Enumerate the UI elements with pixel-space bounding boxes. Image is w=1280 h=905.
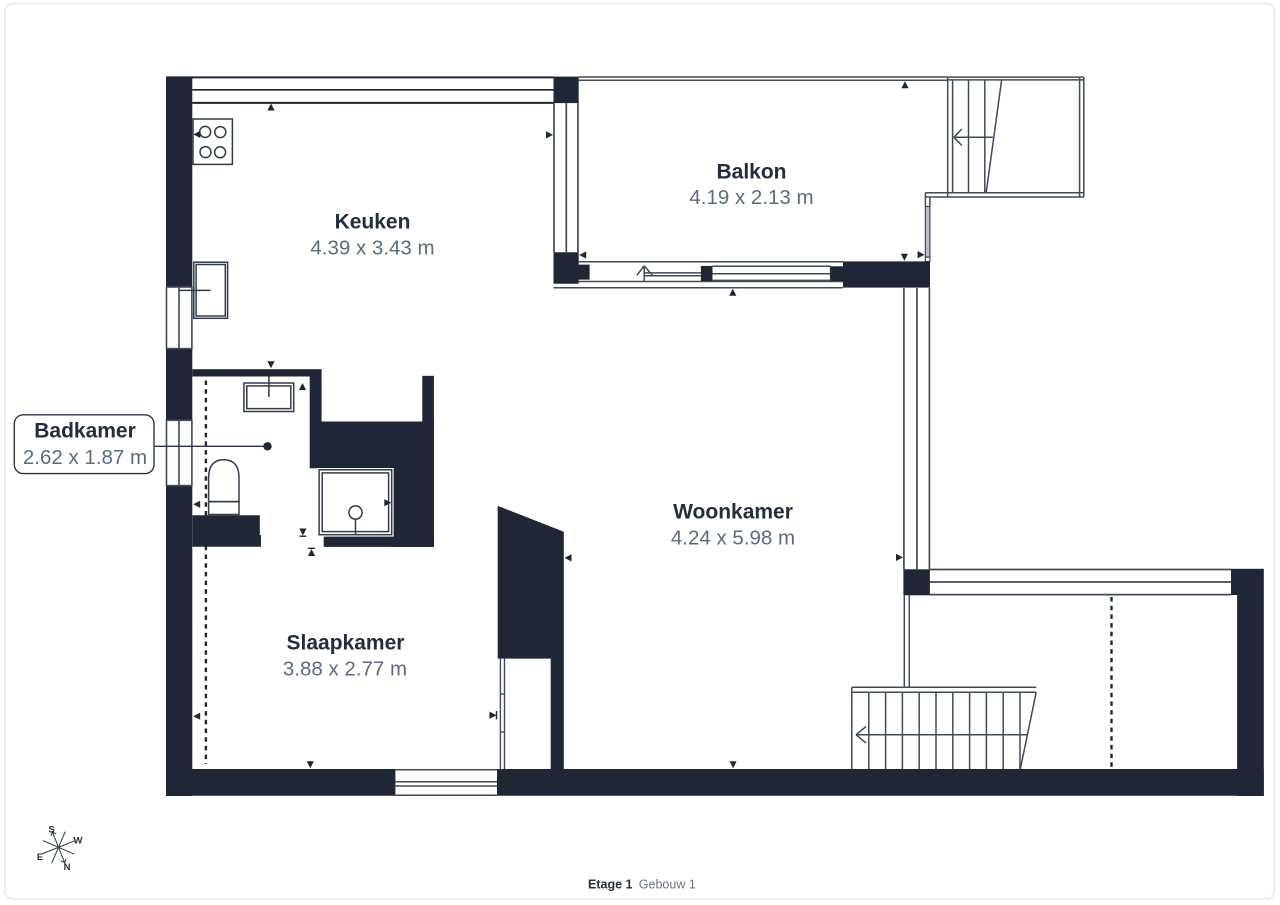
svg-text:Woonkamer: Woonkamer	[673, 501, 793, 524]
svg-text:E: E	[37, 852, 43, 863]
svg-text:Keuken: Keuken	[335, 210, 411, 233]
svg-text:4.39 x 3.43 m: 4.39 x 3.43 m	[310, 237, 434, 260]
svg-text:N: N	[64, 862, 71, 873]
svg-text:4.24 x 5.98 m: 4.24 x 5.98 m	[671, 527, 795, 550]
svg-text:Slaapkamer: Slaapkamer	[287, 631, 405, 654]
svg-text:2.62 x 1.87 m: 2.62 x 1.87 m	[23, 446, 147, 469]
svg-text:Gebouw 1: Gebouw 1	[639, 878, 696, 892]
svg-text:Etage 1: Etage 1	[588, 878, 633, 892]
svg-text:4.19 x 2.13 m: 4.19 x 2.13 m	[689, 186, 813, 209]
svg-text:Badkamer: Badkamer	[34, 420, 136, 443]
svg-text:W: W	[74, 836, 83, 847]
svg-text:S: S	[48, 825, 54, 836]
svg-text:Balkon: Balkon	[716, 160, 786, 183]
svg-text:3.88 x 2.77 m: 3.88 x 2.77 m	[283, 658, 407, 681]
